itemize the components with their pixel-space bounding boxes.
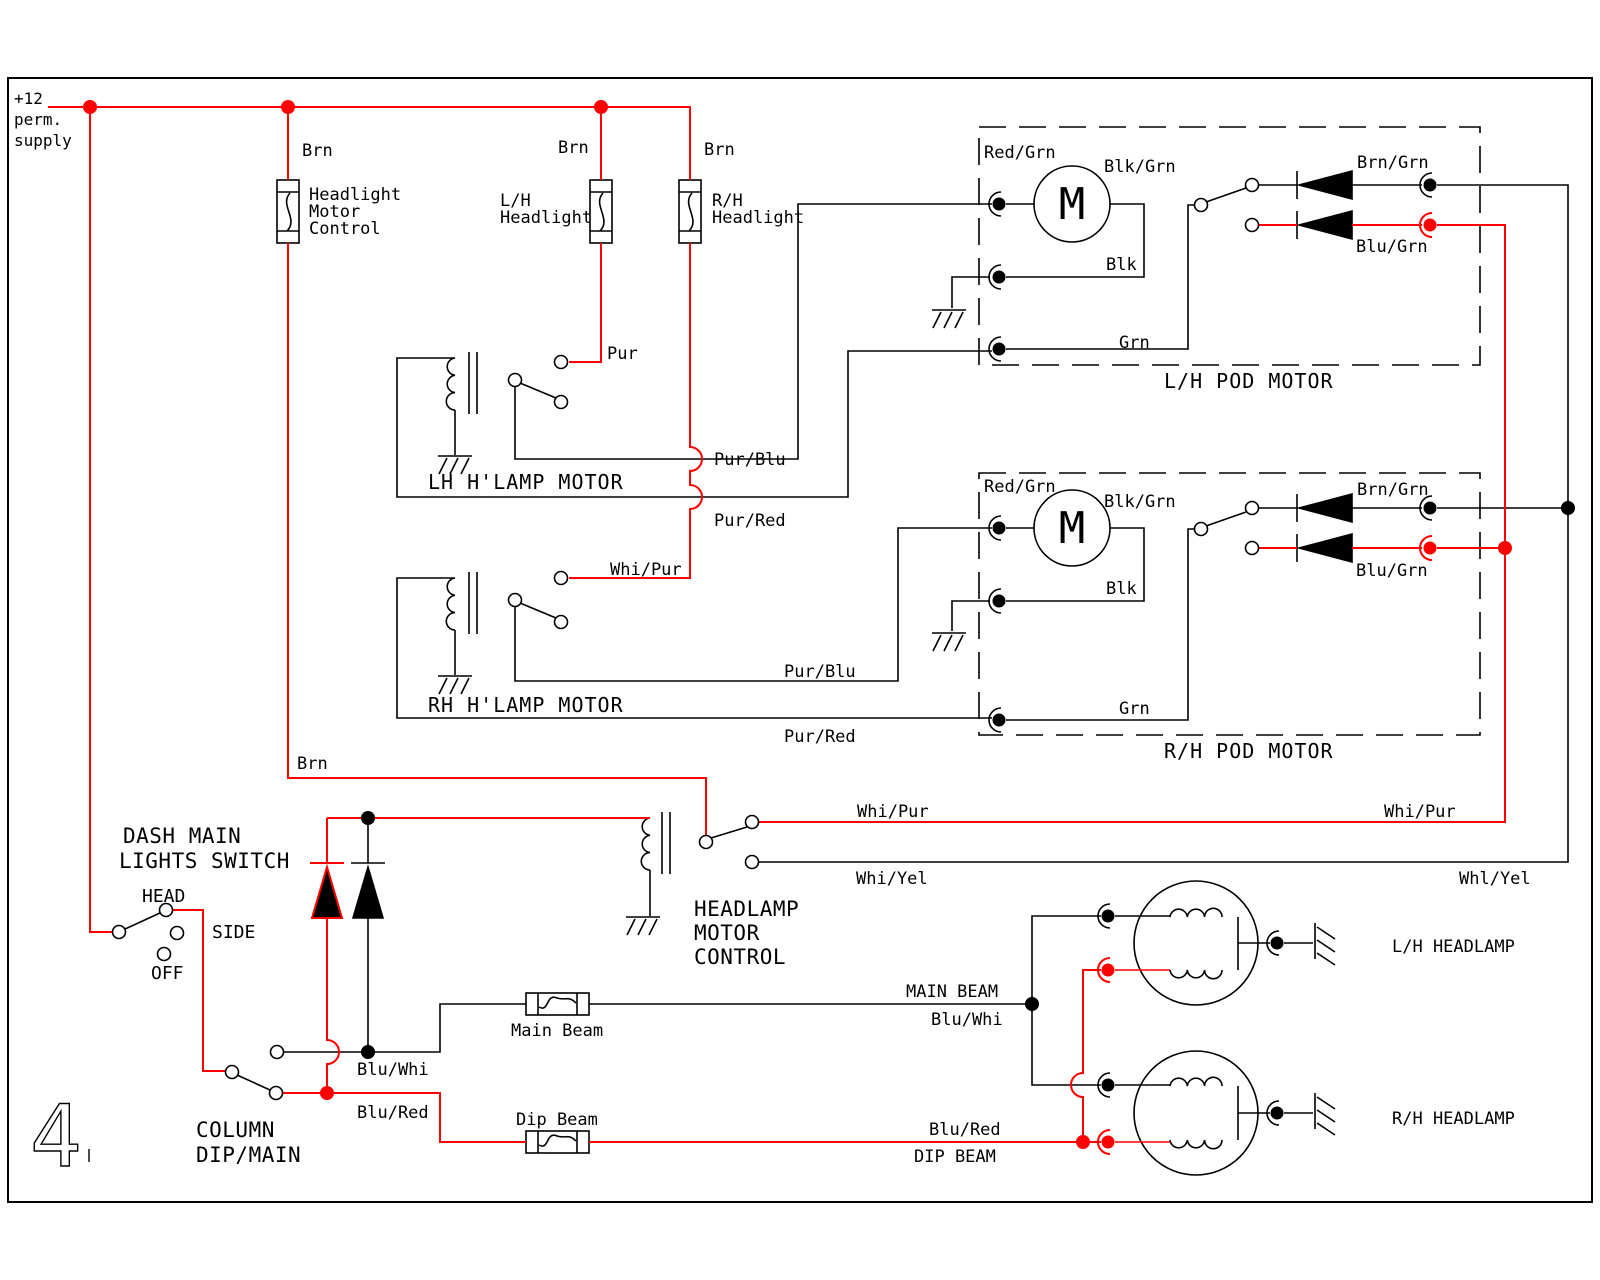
wire-label: Blu/Whi <box>931 1010 1003 1030</box>
lh-pod-pivot <box>1195 199 1208 212</box>
lh-relay-pivot <box>509 374 522 387</box>
hmc-title: CONTROL <box>694 945 786 969</box>
fuse-label: Control <box>309 219 381 239</box>
lh-relay-title: LH H'LAMP MOTOR <box>428 470 624 494</box>
wire-label: Pur/Blu <box>714 450 786 470</box>
hmc-arm <box>711 827 747 838</box>
diode-icon <box>312 867 342 918</box>
rh-pod-title: R/H POD MOTOR <box>1164 739 1334 763</box>
wire-label: Blu/Red <box>357 1103 429 1123</box>
text-labels: +12 perm. supply Brn Headlight Motor Con… <box>14 89 1531 1187</box>
lh-pod-diode-down <box>1299 211 1352 239</box>
wire-label: DIP BEAM <box>914 1147 996 1167</box>
rh-relay-whipur-contact <box>555 572 568 585</box>
fuse-label: Main Beam <box>511 1021 603 1041</box>
rh-headlamp-label: R/H HEADLAMP <box>1392 1109 1515 1129</box>
wire-label: Brn/Grn <box>1357 153 1429 173</box>
wire-label: Grn <box>1119 699 1150 719</box>
hmc-pivot <box>700 836 713 849</box>
wire-label: Brn/Grn <box>1357 480 1429 500</box>
lh-relay-core <box>469 352 477 414</box>
wire-label: Blk/Grn <box>1104 492 1176 512</box>
lh-pod-contact-down <box>1246 219 1259 232</box>
dash-switch-pivot <box>113 926 126 939</box>
fuse-label: Headlight <box>712 208 804 228</box>
column-switch-title: COLUMN <box>196 1118 275 1142</box>
rh-pod-motor <box>932 490 1568 732</box>
lh-filament-main <box>1170 908 1222 917</box>
rh-relay-coil <box>446 578 455 630</box>
wire-label: Red/Grn <box>984 477 1056 497</box>
wire-label: Whl/Yel <box>1459 869 1531 889</box>
column-switch-pivot <box>226 1066 239 1079</box>
lh-relay-arm <box>520 383 556 398</box>
dash-switch-title: DASH MAIN <box>123 824 241 848</box>
rh-pod-diode-up <box>1299 494 1352 522</box>
chassis-ground-icon <box>1315 923 1335 965</box>
wire-label: Blu/Red <box>929 1120 1001 1140</box>
ground-icon <box>626 917 660 935</box>
dash-contact-side <box>171 927 184 940</box>
hmc-coil <box>641 818 650 870</box>
chassis-ground-icon <box>1315 1093 1335 1135</box>
switch-contacts <box>113 179 1259 1100</box>
wire-label: Blk <box>1106 579 1137 599</box>
rh-relay-title: RH H'LAMP MOTOR <box>428 693 624 717</box>
wire-label-brn: Brn <box>558 138 589 158</box>
wire-label: Whi/Pur <box>857 802 929 822</box>
black-junctions <box>361 179 1575 1120</box>
rh-relay-pivot <box>509 594 522 607</box>
wire-label: Whi/Pur <box>1384 802 1456 822</box>
blu-grn-bus <box>759 225 1505 822</box>
column-contact-dip <box>270 1087 283 1100</box>
fuse-rh-headlight <box>679 180 701 243</box>
rh-pod-contact-up <box>1246 502 1259 515</box>
lh-relay-contact <box>555 396 568 409</box>
rh-pod-motor-box <box>979 473 1480 735</box>
rh-filament-dip <box>1170 1140 1222 1149</box>
motor-letter: M <box>1059 503 1086 554</box>
supply-drop-dash-switch <box>90 107 112 932</box>
wire-label: Pur/Red <box>784 727 856 747</box>
dash-switch-title: LIGHTS SWITCH <box>119 849 290 873</box>
hmc-title: MOTOR <box>694 921 760 945</box>
ground-icon <box>932 633 966 651</box>
dash-contact-off <box>158 948 171 961</box>
hmc-title: HEADLAMP <box>694 897 799 921</box>
wire-label-brn: Brn <box>297 754 328 774</box>
lamp-red-branch <box>1071 970 1101 1142</box>
supply-label: supply <box>14 131 72 150</box>
wire-label-pur: Pur <box>607 344 638 364</box>
wire-label: Blk/Grn <box>1104 157 1176 177</box>
fuse-dip-beam <box>526 1131 589 1153</box>
wire-label: MAIN BEAM <box>906 982 998 1002</box>
ground-icon <box>932 310 966 328</box>
fuse-label: Headlight <box>500 208 592 228</box>
ground-icon <box>438 676 472 694</box>
lh-relay-coil <box>446 358 455 410</box>
wire-label: Pur/Blu <box>784 662 856 682</box>
wire-label-brn: Brn <box>302 141 333 161</box>
dash-switch-arm <box>125 913 160 929</box>
dip-beam-fuse <box>526 1131 589 1153</box>
fuse-headlight-motor-control <box>277 180 299 243</box>
wire-label: Blu/Grn <box>1356 237 1428 257</box>
lh-relay-purblu-wire <box>515 204 992 459</box>
supply-label: +12 <box>14 89 43 108</box>
rh-headlamp <box>1115 970 1335 1175</box>
lh-pod-title: L/H POD MOTOR <box>1164 369 1334 393</box>
red-wiring <box>48 107 1505 1154</box>
sheet-border <box>8 78 1592 1202</box>
rh-relay-arm <box>520 603 556 618</box>
motor-letter: M <box>1059 179 1086 230</box>
wire-label: Blu/Whi <box>357 1060 429 1080</box>
wire-label: Red/Grn <box>984 143 1056 163</box>
page-number: 4 <box>30 1087 82 1187</box>
whi-pur-rh-wire <box>569 243 702 578</box>
lh-hlamp-motor-relay <box>397 204 992 497</box>
black-wiring <box>125 127 1568 1175</box>
supply-bus <box>48 107 690 180</box>
wire-label: Whi/Pur <box>610 560 682 580</box>
rh-relay-core <box>469 572 477 634</box>
lh-headlamp <box>1134 881 1335 1005</box>
wire-label: Grn <box>1119 333 1150 353</box>
wire-label-brn: Brn <box>704 140 735 160</box>
switch-pos-head: HEAD <box>142 886 185 907</box>
hmc-contact-whipur <box>746 816 759 829</box>
fuse-label: Dip Beam <box>516 1110 598 1130</box>
lh-filament-dip <box>1170 970 1222 979</box>
pur-wire <box>569 243 601 362</box>
diode-icon <box>353 867 383 918</box>
fuse-lh-headlight <box>590 180 612 243</box>
headlamp-wiring-schematic: +12 perm. supply Brn Headlight Motor Con… <box>0 0 1600 1280</box>
wire-label: Pur/Red <box>714 511 786 531</box>
fuse-main-beam <box>526 993 589 1015</box>
column-contact-main <box>271 1046 284 1059</box>
hmc-contact-whiyel <box>746 856 759 869</box>
rh-relay-purblu-wire <box>515 528 992 681</box>
switch-pos-off: OFF <box>151 963 184 984</box>
rh-pod-pivot <box>1195 523 1208 536</box>
brn-feed-control <box>288 243 706 835</box>
switch-pos-side: SIDE <box>212 922 255 943</box>
wiring-diagram-page: +12 perm. supply Brn Headlight Motor Con… <box>0 0 1600 1280</box>
rh-relay-contact <box>555 616 568 629</box>
dash-diode-black <box>351 818 385 1052</box>
column-switch-arm <box>237 1075 270 1090</box>
rh-hlamp-motor-relay <box>397 528 992 718</box>
column-switch-title: DIP/MAIN <box>196 1143 301 1167</box>
rh-pod-diode-down <box>1299 534 1352 562</box>
wire-label: Blu/Grn <box>1356 561 1428 581</box>
wire-label: Blk <box>1106 255 1137 275</box>
lh-relay-pur-contact <box>555 356 568 369</box>
rh-pod-switch-arm <box>1206 512 1246 526</box>
rh-filament-main <box>1170 1077 1222 1086</box>
lh-pod-switch-arm <box>1206 188 1246 202</box>
lh-pod-contact-up <box>1246 179 1259 192</box>
hmc-core <box>662 812 670 874</box>
supply-label: perm. <box>14 110 62 129</box>
rh-pod-contact-down <box>1246 542 1259 555</box>
wire-label: Whi/Yel <box>856 869 928 889</box>
lh-pod-diode-up <box>1299 171 1352 199</box>
lh-headlamp-label: L/H HEADLAMP <box>1392 937 1515 957</box>
